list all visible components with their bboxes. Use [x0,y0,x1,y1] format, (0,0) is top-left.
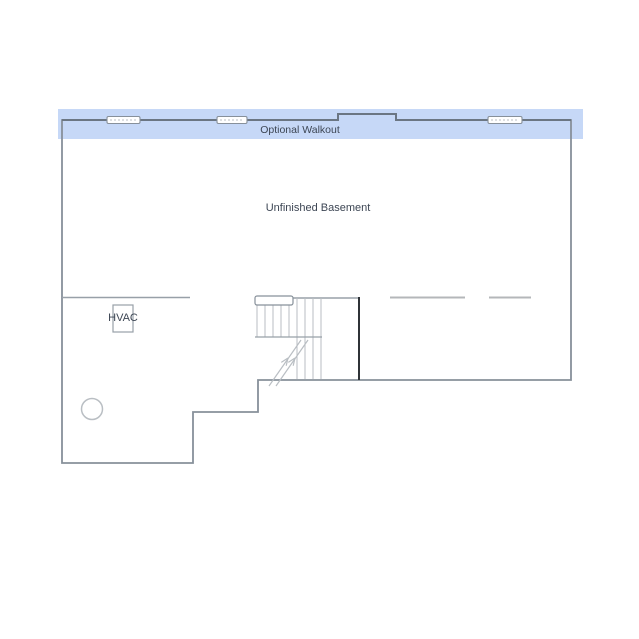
column-circle-icon [82,399,103,420]
staircase [255,296,360,386]
stair-arrowhead-icon [288,358,295,366]
floorplan-canvas: Optional Walkout Unfinished Basement HVA… [0,0,639,639]
exterior-wall-outline [62,114,571,463]
walkout-label: Optional Walkout [240,124,360,137]
stair-arrowhead-icon [281,358,288,366]
hvac-label: HVAC [93,312,153,325]
basement-label: Unfinished Basement [258,202,378,215]
stair-landing-rect [255,296,293,305]
